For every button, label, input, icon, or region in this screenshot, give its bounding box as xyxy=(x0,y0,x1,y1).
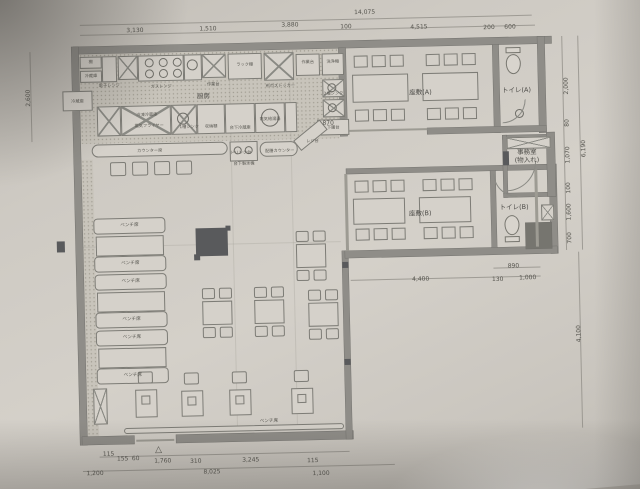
equipment-label: ドリンク台 xyxy=(230,150,251,156)
dimension-label: 115 xyxy=(103,451,115,458)
cushion xyxy=(354,180,368,192)
dining-table xyxy=(308,302,339,327)
photo-background: 14,0753,1301,5103,8801004,5152006002,600… xyxy=(0,0,640,489)
equipment-xbox xyxy=(541,204,554,220)
table-inset xyxy=(187,396,196,405)
bench-label: ベンチ席 xyxy=(122,317,141,323)
dimension-label: 1,760 xyxy=(154,457,171,465)
dimension-line xyxy=(80,25,535,36)
room-label: 座敷(A) xyxy=(409,89,432,97)
dimension-label: 4,515 xyxy=(410,23,427,31)
equipment-box xyxy=(102,56,118,82)
dining-chair xyxy=(271,286,284,297)
equipment-label: 電子レンジ xyxy=(99,83,120,89)
equipment-label: 冷蔵庫 xyxy=(71,98,84,103)
counter-stool xyxy=(176,160,192,174)
dining-table xyxy=(202,301,233,326)
entrance-marker: △ xyxy=(155,445,162,456)
dimension-label: 100 xyxy=(565,182,572,194)
bench-table xyxy=(96,235,164,257)
floor-plan: 14,0753,1301,5103,8801004,5152006002,600… xyxy=(0,0,640,489)
low-table xyxy=(353,198,406,225)
room-label: 厨房 xyxy=(197,93,210,101)
wall xyxy=(537,36,546,132)
bench-label: ベンチ席 xyxy=(123,335,142,341)
dining-chair xyxy=(294,370,309,382)
dimension-label: 1,000 xyxy=(519,274,536,282)
cushion xyxy=(460,226,474,238)
dimension-label: 130 xyxy=(492,276,504,283)
cushion xyxy=(391,109,405,121)
cushion xyxy=(356,228,370,240)
room-label: トイレ(A) xyxy=(502,87,531,95)
dimension-label: 14,075 xyxy=(354,9,375,17)
equipment-xbox xyxy=(202,54,227,79)
equipment-label: 台下冷蔵庫 xyxy=(230,125,251,131)
cushion xyxy=(427,108,441,120)
door-arc xyxy=(502,99,527,124)
dining-table xyxy=(296,243,327,268)
equipment-box xyxy=(285,102,298,132)
partition-line xyxy=(345,128,427,132)
bench-table xyxy=(98,347,166,369)
equipment-label: 配膳カウンター xyxy=(265,148,294,154)
dimension-line xyxy=(80,15,532,26)
cushion xyxy=(463,107,477,119)
cushion xyxy=(355,109,369,121)
column-block xyxy=(194,254,200,260)
partition-line xyxy=(344,174,349,251)
equipment-label: 作業台 xyxy=(207,81,220,86)
equipment-label: 布巾ストッカー xyxy=(266,83,295,89)
dimension-label: 100 xyxy=(340,23,352,30)
equipment-label: 電気給湯器 xyxy=(259,116,280,122)
dining-chair xyxy=(272,325,285,336)
cushion xyxy=(424,227,438,239)
dining-chair xyxy=(219,288,232,299)
column-block xyxy=(344,359,350,365)
equipment-label: レジ台 xyxy=(306,138,319,143)
bench-label: ベンチ席 xyxy=(124,373,143,379)
dimension-label: 3,130 xyxy=(126,27,143,35)
dining-chair xyxy=(309,329,322,340)
cushion xyxy=(392,228,406,240)
dimension-label: 700 xyxy=(566,232,573,244)
dimension-label: 4,100 xyxy=(575,325,583,342)
bench-label: ベンチ席 xyxy=(120,223,139,229)
dimension-label: 2,000 xyxy=(563,77,571,94)
table-inset xyxy=(235,395,244,404)
dining-chair xyxy=(232,371,247,383)
dimension-label: 2,600 xyxy=(25,89,33,106)
equipment-label: 1槽シンク xyxy=(179,124,199,129)
cushion xyxy=(445,107,459,119)
dimension-label: 155 xyxy=(117,455,129,462)
dining-chair xyxy=(326,328,339,339)
equipment-box xyxy=(296,54,320,77)
dining-chair xyxy=(255,326,268,337)
dimension-label: 1,070 xyxy=(564,146,572,163)
dining-chair xyxy=(203,327,216,338)
dimension-label: 8,025 xyxy=(203,468,220,476)
room-label: 事務室 (物入れ) xyxy=(514,149,539,165)
partition-line xyxy=(136,439,174,442)
toilet-icon xyxy=(504,215,519,235)
bench-label: ベンチ席 xyxy=(121,261,140,267)
dining-chair xyxy=(296,270,309,281)
counter-stool xyxy=(110,162,126,176)
toilet-tank xyxy=(505,47,520,53)
dimension-label: 310 xyxy=(190,458,202,465)
equipment-xbox xyxy=(118,56,139,80)
dimension-label: 4,400 xyxy=(412,275,429,283)
equipment-label: 収納棚 xyxy=(205,123,218,128)
dimension-line xyxy=(83,464,395,472)
wall xyxy=(492,44,500,132)
bench-label: ベンチ席 xyxy=(121,279,140,285)
wall xyxy=(427,125,546,134)
cushion xyxy=(354,55,368,67)
equipment-label: カウンター席 xyxy=(137,148,162,154)
dining-chair xyxy=(325,289,338,300)
dining-chair xyxy=(202,288,215,299)
dimension-label: 1,510 xyxy=(199,25,216,33)
equipment-label: 洗浄機 xyxy=(326,59,339,64)
equipment-xbox xyxy=(97,106,122,137)
partition-line xyxy=(534,170,539,247)
bench-label: ベンチ席 xyxy=(260,419,279,425)
dining-table xyxy=(254,299,285,324)
counter-stool xyxy=(154,161,170,175)
dimension-label: 200 xyxy=(483,24,495,31)
equipment-label: 冷凍冷蔵庫 xyxy=(136,112,157,118)
dimension-label: 1,600 xyxy=(565,203,573,220)
cushion xyxy=(372,55,386,67)
equipment-label: 電気フライヤー xyxy=(134,123,163,129)
room-label: トイレ(B) xyxy=(500,204,529,212)
dimension-label: 60 xyxy=(132,455,140,462)
dimension-label: 890 xyxy=(508,262,520,269)
bench-table xyxy=(97,291,165,313)
equipment-label: 冷蔵庫 xyxy=(85,73,98,78)
dimension-line xyxy=(351,276,541,281)
dining-chair xyxy=(220,327,233,338)
column-block xyxy=(57,241,65,252)
cushion xyxy=(458,178,472,190)
equipment-label: 作業台 xyxy=(301,59,314,64)
equipment-label: 2槽シンク xyxy=(324,90,344,95)
cushion xyxy=(422,179,436,191)
room-label: 座敷(B) xyxy=(409,210,432,218)
dining-chair xyxy=(296,231,309,242)
dimension-label: 3,245 xyxy=(242,456,259,464)
dimension-label: 600 xyxy=(504,23,516,30)
dining-chair xyxy=(313,230,326,241)
cushion xyxy=(426,54,440,66)
equipment-label: 下膳台 xyxy=(327,125,340,130)
low-table xyxy=(352,74,409,103)
wall xyxy=(82,436,134,445)
equipment-box xyxy=(322,53,344,75)
dining-chair xyxy=(313,269,326,280)
cushion xyxy=(372,180,386,192)
dimension-label: 115 xyxy=(307,457,319,464)
table-inset xyxy=(141,395,150,404)
cushion xyxy=(444,53,458,65)
equipment-label: 台下製氷機 xyxy=(233,160,254,166)
equipment-xbox xyxy=(121,105,172,136)
equipment-box xyxy=(197,104,226,135)
equipment-label: 棚 xyxy=(89,59,93,64)
dimension-label: 3,880 xyxy=(281,21,298,29)
cushion xyxy=(440,178,454,190)
column-block xyxy=(225,226,230,231)
counter-stool xyxy=(132,161,148,175)
dining-chair xyxy=(308,290,321,301)
dining-chair xyxy=(254,287,267,298)
cushion xyxy=(442,226,456,238)
equipment-xbox xyxy=(264,52,295,81)
dimension-label: 6,190 xyxy=(580,140,588,157)
toilet-tank xyxy=(505,236,520,242)
dining-chair xyxy=(184,372,199,384)
cushion xyxy=(374,228,388,240)
dimension-label: 1,100 xyxy=(312,470,329,478)
dimension-label: 80 xyxy=(564,119,571,127)
column-block xyxy=(342,262,348,268)
cushion xyxy=(390,55,404,67)
column-block xyxy=(195,228,228,257)
table-inset xyxy=(297,394,306,403)
wall xyxy=(176,431,353,443)
column-block xyxy=(503,151,509,165)
equipment-label: ラック棚 xyxy=(236,62,253,67)
equipment-xbox xyxy=(93,388,108,424)
dimension-label: 1,200 xyxy=(86,470,103,478)
toilet-icon xyxy=(506,54,521,74)
door-arc xyxy=(493,173,518,198)
cushion xyxy=(390,180,404,192)
equipment-label: ガスレンジ xyxy=(151,83,172,89)
cushion xyxy=(373,109,387,121)
cushion xyxy=(462,53,476,65)
